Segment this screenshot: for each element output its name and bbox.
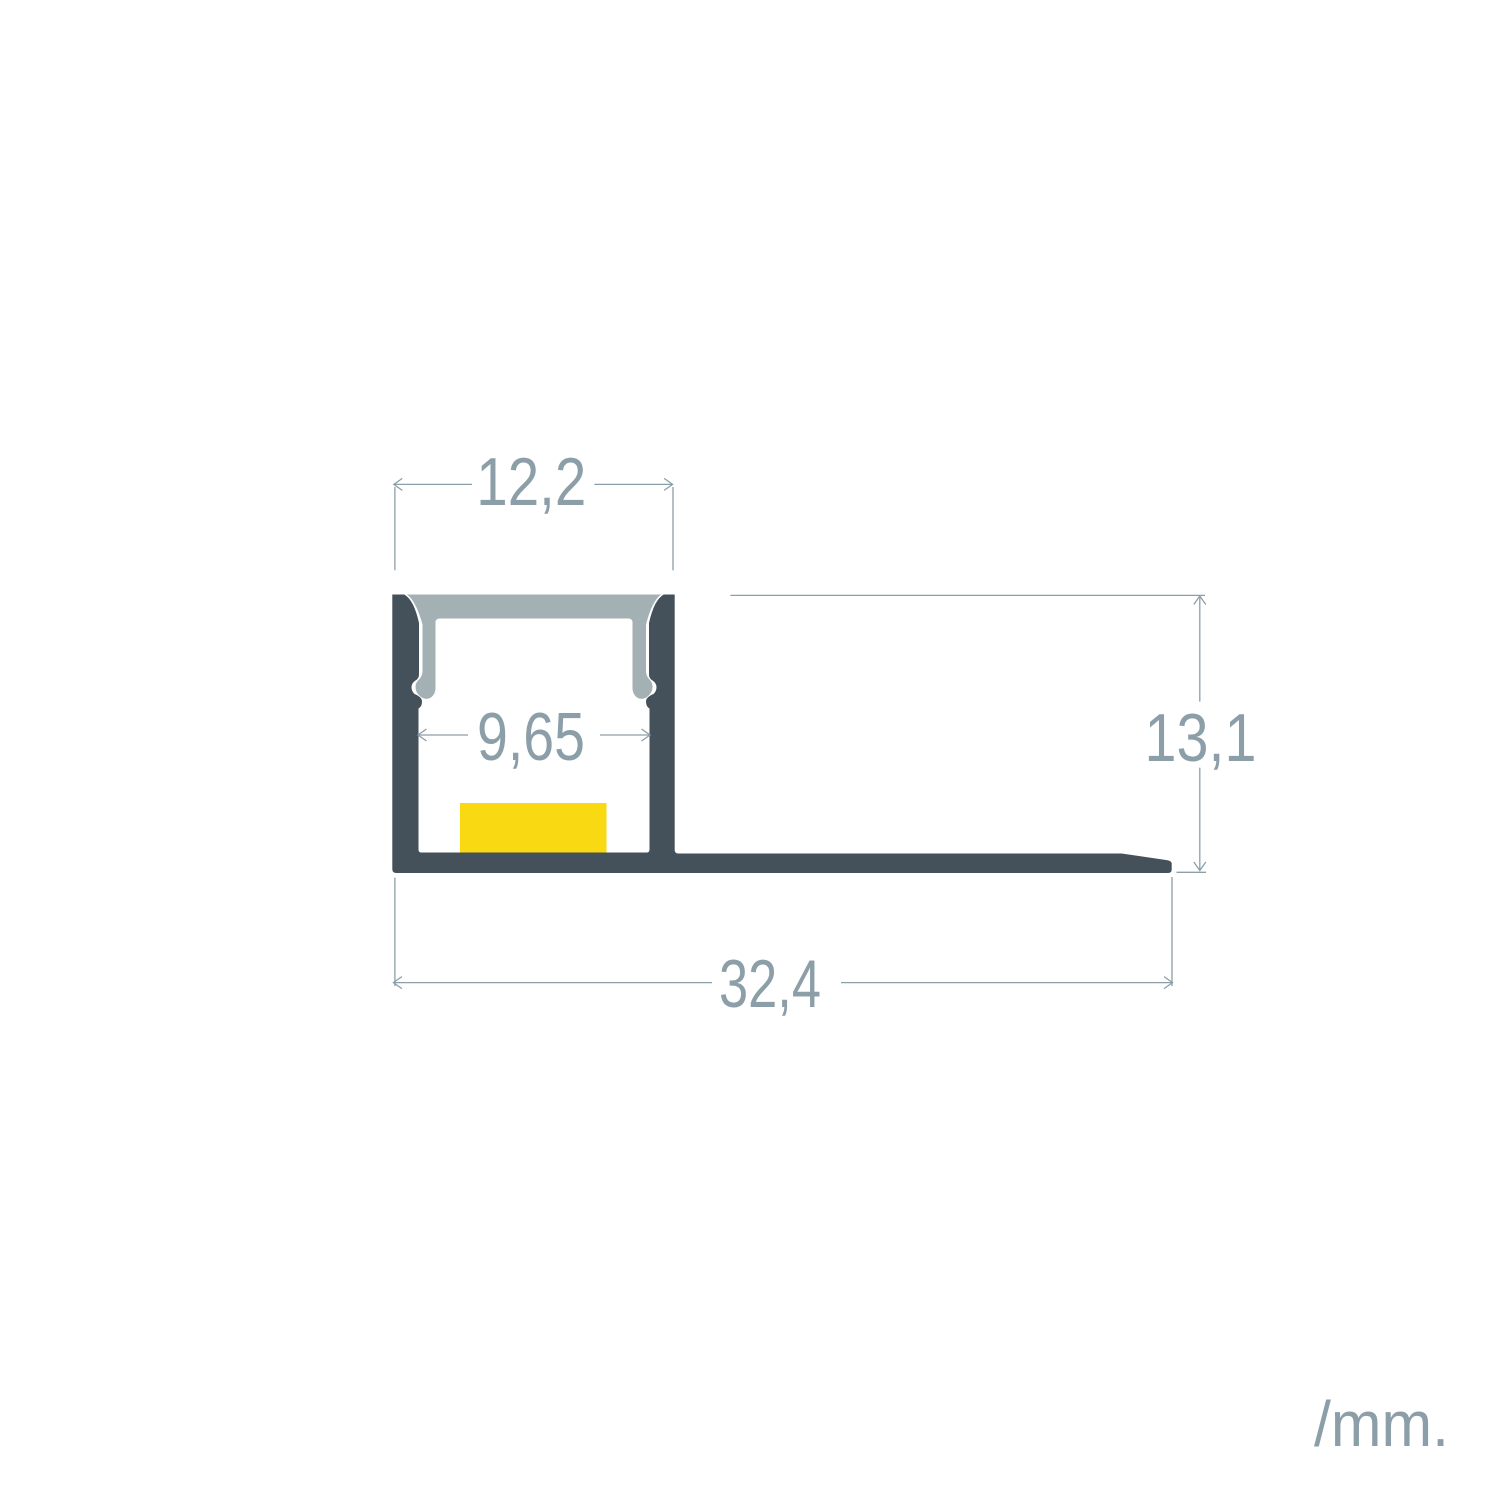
svg-text:12,2: 12,2	[476, 444, 586, 520]
svg-text:9,65: 9,65	[477, 699, 585, 775]
svg-text:32,4: 32,4	[719, 946, 821, 1022]
svg-text:13,1: 13,1	[1145, 700, 1257, 776]
svg-text:/mm.: /mm.	[1314, 1388, 1449, 1460]
